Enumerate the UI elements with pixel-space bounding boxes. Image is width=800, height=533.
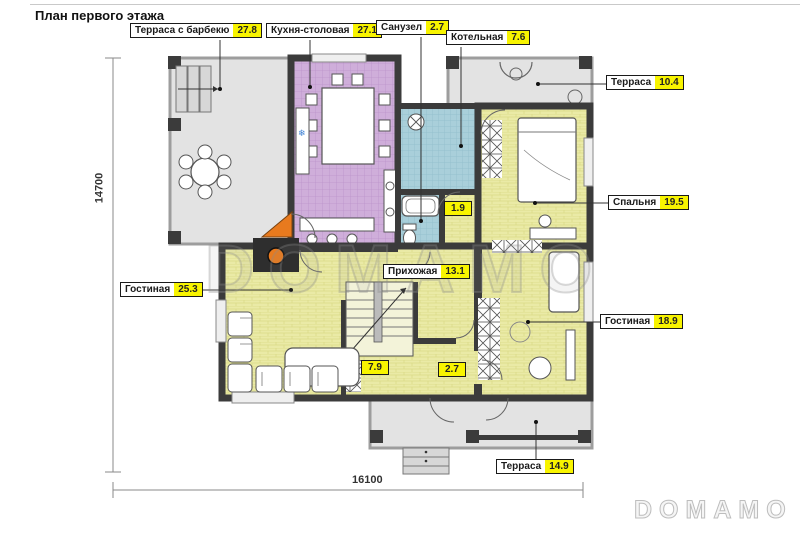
hall-closet [492, 240, 542, 253]
living-right-wardrobe [478, 298, 500, 380]
bed [518, 118, 576, 202]
armchair [529, 357, 551, 379]
callout-living-left: Гостиная25.3 [120, 282, 203, 297]
dimension-horizontal: 16100 [352, 474, 383, 486]
callout-kitchen-dining: Кухня-столовая27.1 [266, 23, 382, 38]
callout-bathroom: Санузел2.7 [376, 20, 449, 35]
callout-terrace-bbq: Терраса с барбекю27.8 [130, 23, 262, 38]
callout-living-right: Гостиная18.9 [600, 314, 683, 329]
bedroom-wardrobe [482, 120, 502, 178]
floor-plan-page: План первого этажа [0, 0, 800, 533]
bay-window [232, 392, 294, 403]
callout-boiler: Котельная7.6 [446, 30, 530, 45]
tv-unit [566, 330, 575, 380]
area-tag-1-9: 1.9 [444, 201, 472, 216]
terrace-bbq-room [168, 56, 302, 244]
callout-hallway: Прихожая13.1 [383, 264, 470, 279]
bedroom-room [478, 106, 593, 246]
boiler-unit-icon [408, 114, 424, 130]
terrace-railing [478, 435, 580, 440]
boiler-room [398, 106, 478, 192]
area-tag-7-9: 7.9 [361, 360, 389, 375]
daybed [549, 252, 579, 312]
stair-rail [374, 282, 382, 342]
svg-text:❄: ❄ [298, 128, 306, 138]
area-tag-2-7: 2.7 [438, 362, 466, 377]
living-right-window [584, 262, 593, 322]
kitchen-window [312, 54, 366, 62]
terrace-bottom-steps [403, 448, 449, 474]
callout-terrace-bottom: Терраса14.9 [496, 459, 574, 474]
terrace-top-room [446, 56, 592, 108]
callout-bedroom: Спальня19.5 [608, 195, 689, 210]
bedroom-window [584, 138, 593, 186]
dimension-vertical: 14700 [93, 173, 105, 204]
callout-terrace-top: Терраса10.4 [606, 75, 684, 90]
living-left-window [216, 300, 226, 342]
